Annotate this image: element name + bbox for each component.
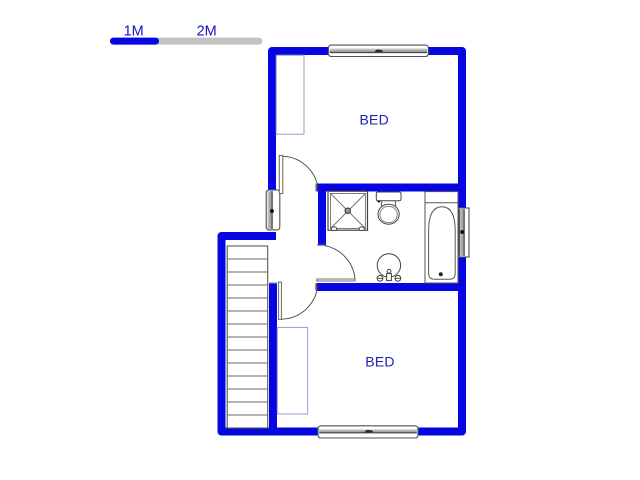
svg-text:BED: BED [365,354,394,370]
svg-text:BED: BED [360,112,389,128]
svg-text:1M: 1M [124,23,144,39]
svg-text:2M: 2M [197,23,217,39]
